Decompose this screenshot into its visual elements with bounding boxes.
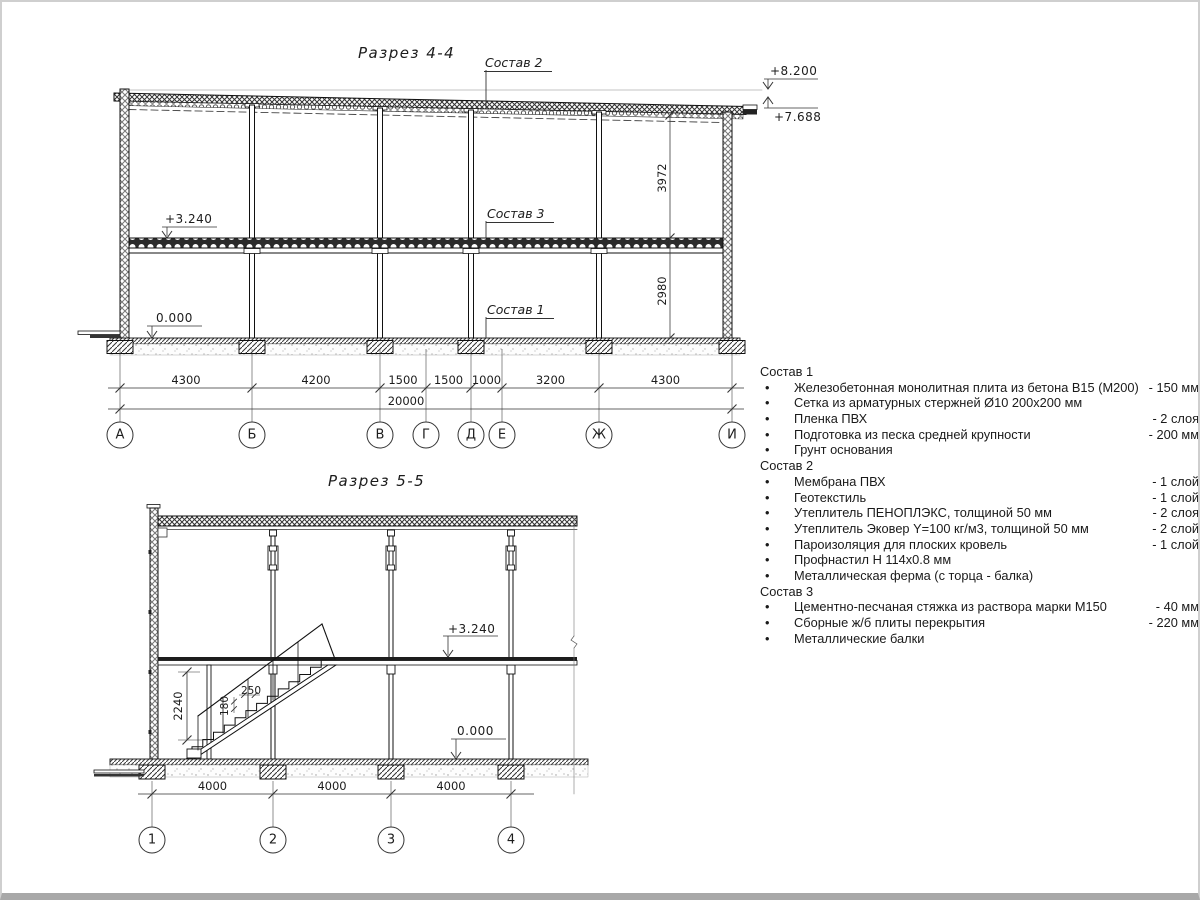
composition-item: •Мембрана ПВХ- 1 слой [755,474,1200,490]
leader-label-comp3: Состав 3 [486,206,554,223]
composition-item-value: - 2 слоя [1152,505,1200,521]
composition-item: •Железобетонная монолитная плита из бето… [755,380,1200,396]
composition-item-text: Железобетонная монолитная плита из бетон… [794,380,1139,396]
axis-bubble: 1 [139,827,166,854]
composition-item-text: Мембрана ПВХ [794,474,886,490]
bullet-icon: • [765,380,777,396]
bullet-icon: • [765,490,777,506]
composition-item-value: - 1 слой [1152,537,1200,553]
composition-item-value: - 40 мм [1156,599,1200,615]
bullet-icon: • [765,411,777,427]
composition-lists: Состав 1•Железобетонная монолитная плита… [755,364,1200,646]
composition-item-text: Профнастил Н 114x0.8 мм [794,552,951,568]
dim-label: 4000 [317,779,346,793]
elevation-floor-44: +3.240 [165,212,212,226]
bullet-icon: • [765,427,777,443]
composition-item: •Цементно-песчаная стяжка из раствора ма… [755,599,1200,615]
composition-item-text: Подготовка из песка средней крупности [794,427,1031,443]
composition-item-text: Геотекстиль [794,490,866,506]
composition-item-text: Утеплитель Эковер Y=100 кг/м3, толщиной … [794,521,1089,537]
axis-bubble: Д [458,422,485,449]
composition-item-value: - 1 слой [1152,490,1200,506]
composition-item-text: Грунт основания [794,442,893,458]
bullet-icon: • [765,615,777,631]
composition-item: •Грунт основания [755,442,1200,458]
composition-item: •Профнастил Н 114x0.8 мм [755,552,1200,568]
composition-item: •Утеплитель Эковер Y=100 кг/м3, толщиной… [755,521,1200,537]
composition-item-value: - 1 слой [1152,474,1200,490]
section-55-structure [94,505,588,795]
bullet-icon: • [765,552,777,568]
dim-label: 4300 [171,373,200,387]
bullet-icon: • [765,442,777,458]
composition-title: Состав 3 [755,584,1200,600]
axis-bubble: 3 [378,827,405,854]
dim-label: 3200 [536,373,565,387]
axis-bubble: Г [413,422,440,449]
composition-item-text: Металлические балки [794,631,924,647]
composition-item-text: Пленка ПВХ [794,411,867,427]
dim-label: 4000 [436,779,465,793]
composition-item-text: Утеплитель ПЕНОПЛЭКС, толщиной 50 мм [794,505,1052,521]
composition-item: •Пленка ПВХ- 2 слоя [755,411,1200,427]
elevation-roof-low: +7.688 [774,110,821,124]
composition-item-text: Пароизоляция для плоских кровель [794,537,1007,553]
composition-item: •Металлическая ферма (с торца - балка) [755,568,1200,584]
dim-label: 1500 [388,373,417,387]
composition-item-value: - 200 мм [1149,427,1200,443]
axis-bubble: 4 [498,827,525,854]
elevation-ground-55: 0.000 [457,724,494,738]
section-55-annotation-lines [443,636,506,759]
composition-item-text: Металлическая ферма (с торца - балка) [794,568,1033,584]
composition-title: Состав 1 [755,364,1200,380]
drawing-sheet: Разрез 4-4 Разрез 5-5 Состав 2 Состав 3 … [0,0,1200,900]
bullet-icon: • [765,537,777,553]
dim-label: 4300 [651,373,680,387]
composition-item-value: - 220 мм [1149,615,1200,631]
composition-item: •Сборные ж/б плиты перекрытия- 220 мм [755,615,1200,631]
leader-label-comp1: Состав 1 [486,302,554,319]
composition-item-value: - 2 слой [1152,521,1200,537]
dim-3972: 3972 [655,163,669,192]
section-55-title: Разрез 5-5 [328,472,425,490]
axis-bubble: Е [489,422,516,449]
composition-item-text: Сетка из арматурных стержней Ø10 200x200… [794,395,1082,411]
composition-item: •Утеплитель ПЕНОПЛЭКС, толщиной 50 мм- 2… [755,505,1200,521]
bullet-icon: • [765,599,777,615]
axis-bubble: А [107,422,134,449]
elevation-floor-55: +3.240 [448,622,495,636]
axis-bubble: Ж [586,422,613,449]
axis-bubble: Б [239,422,266,449]
dim-2240: 2240 [171,691,185,720]
dim-label: 4000 [198,779,227,793]
bullet-icon: • [765,568,777,584]
dim-label: 4200 [301,373,330,387]
composition-item: •Сетка из арматурных стержней Ø10 200x20… [755,395,1200,411]
bullet-icon: • [765,474,777,490]
composition-item-value: - 2 слоя [1152,411,1200,427]
bullet-icon: • [765,631,777,647]
composition-item: •Подготовка из песка средней крупности- … [755,427,1200,443]
dim-label: 1500 [434,373,463,387]
composition-item: •Металлические балки [755,631,1200,647]
leader-label-comp2: Состав 2 [484,55,552,72]
elevation-ground-44: 0.000 [156,311,193,325]
composition-item-text: Цементно-песчаная стяжка из раствора мар… [794,599,1107,615]
dim-2980: 2980 [655,276,669,305]
dim-180: 180 [219,696,231,716]
bullet-icon: • [765,395,777,411]
dim-label: 20000 [388,394,425,408]
dim-250: 250 [241,685,261,697]
axis-bubble: 2 [260,827,287,854]
dim-label: 1000 [472,373,501,387]
section-44-title: Разрез 4-4 [358,44,455,62]
bullet-icon: • [765,521,777,537]
composition-title: Состав 2 [755,458,1200,474]
composition-item-text: Сборные ж/б плиты перекрытия [794,615,985,631]
elevation-roof-high: +8.200 [770,64,817,78]
axis-bubble: И [719,422,746,449]
composition-item: •Геотекстиль- 1 слой [755,490,1200,506]
composition-item-value: - 150 мм [1149,380,1200,396]
axis-bubble: В [367,422,394,449]
bullet-icon: • [765,505,777,521]
composition-item: •Пароизоляция для плоских кровель- 1 сло… [755,537,1200,553]
